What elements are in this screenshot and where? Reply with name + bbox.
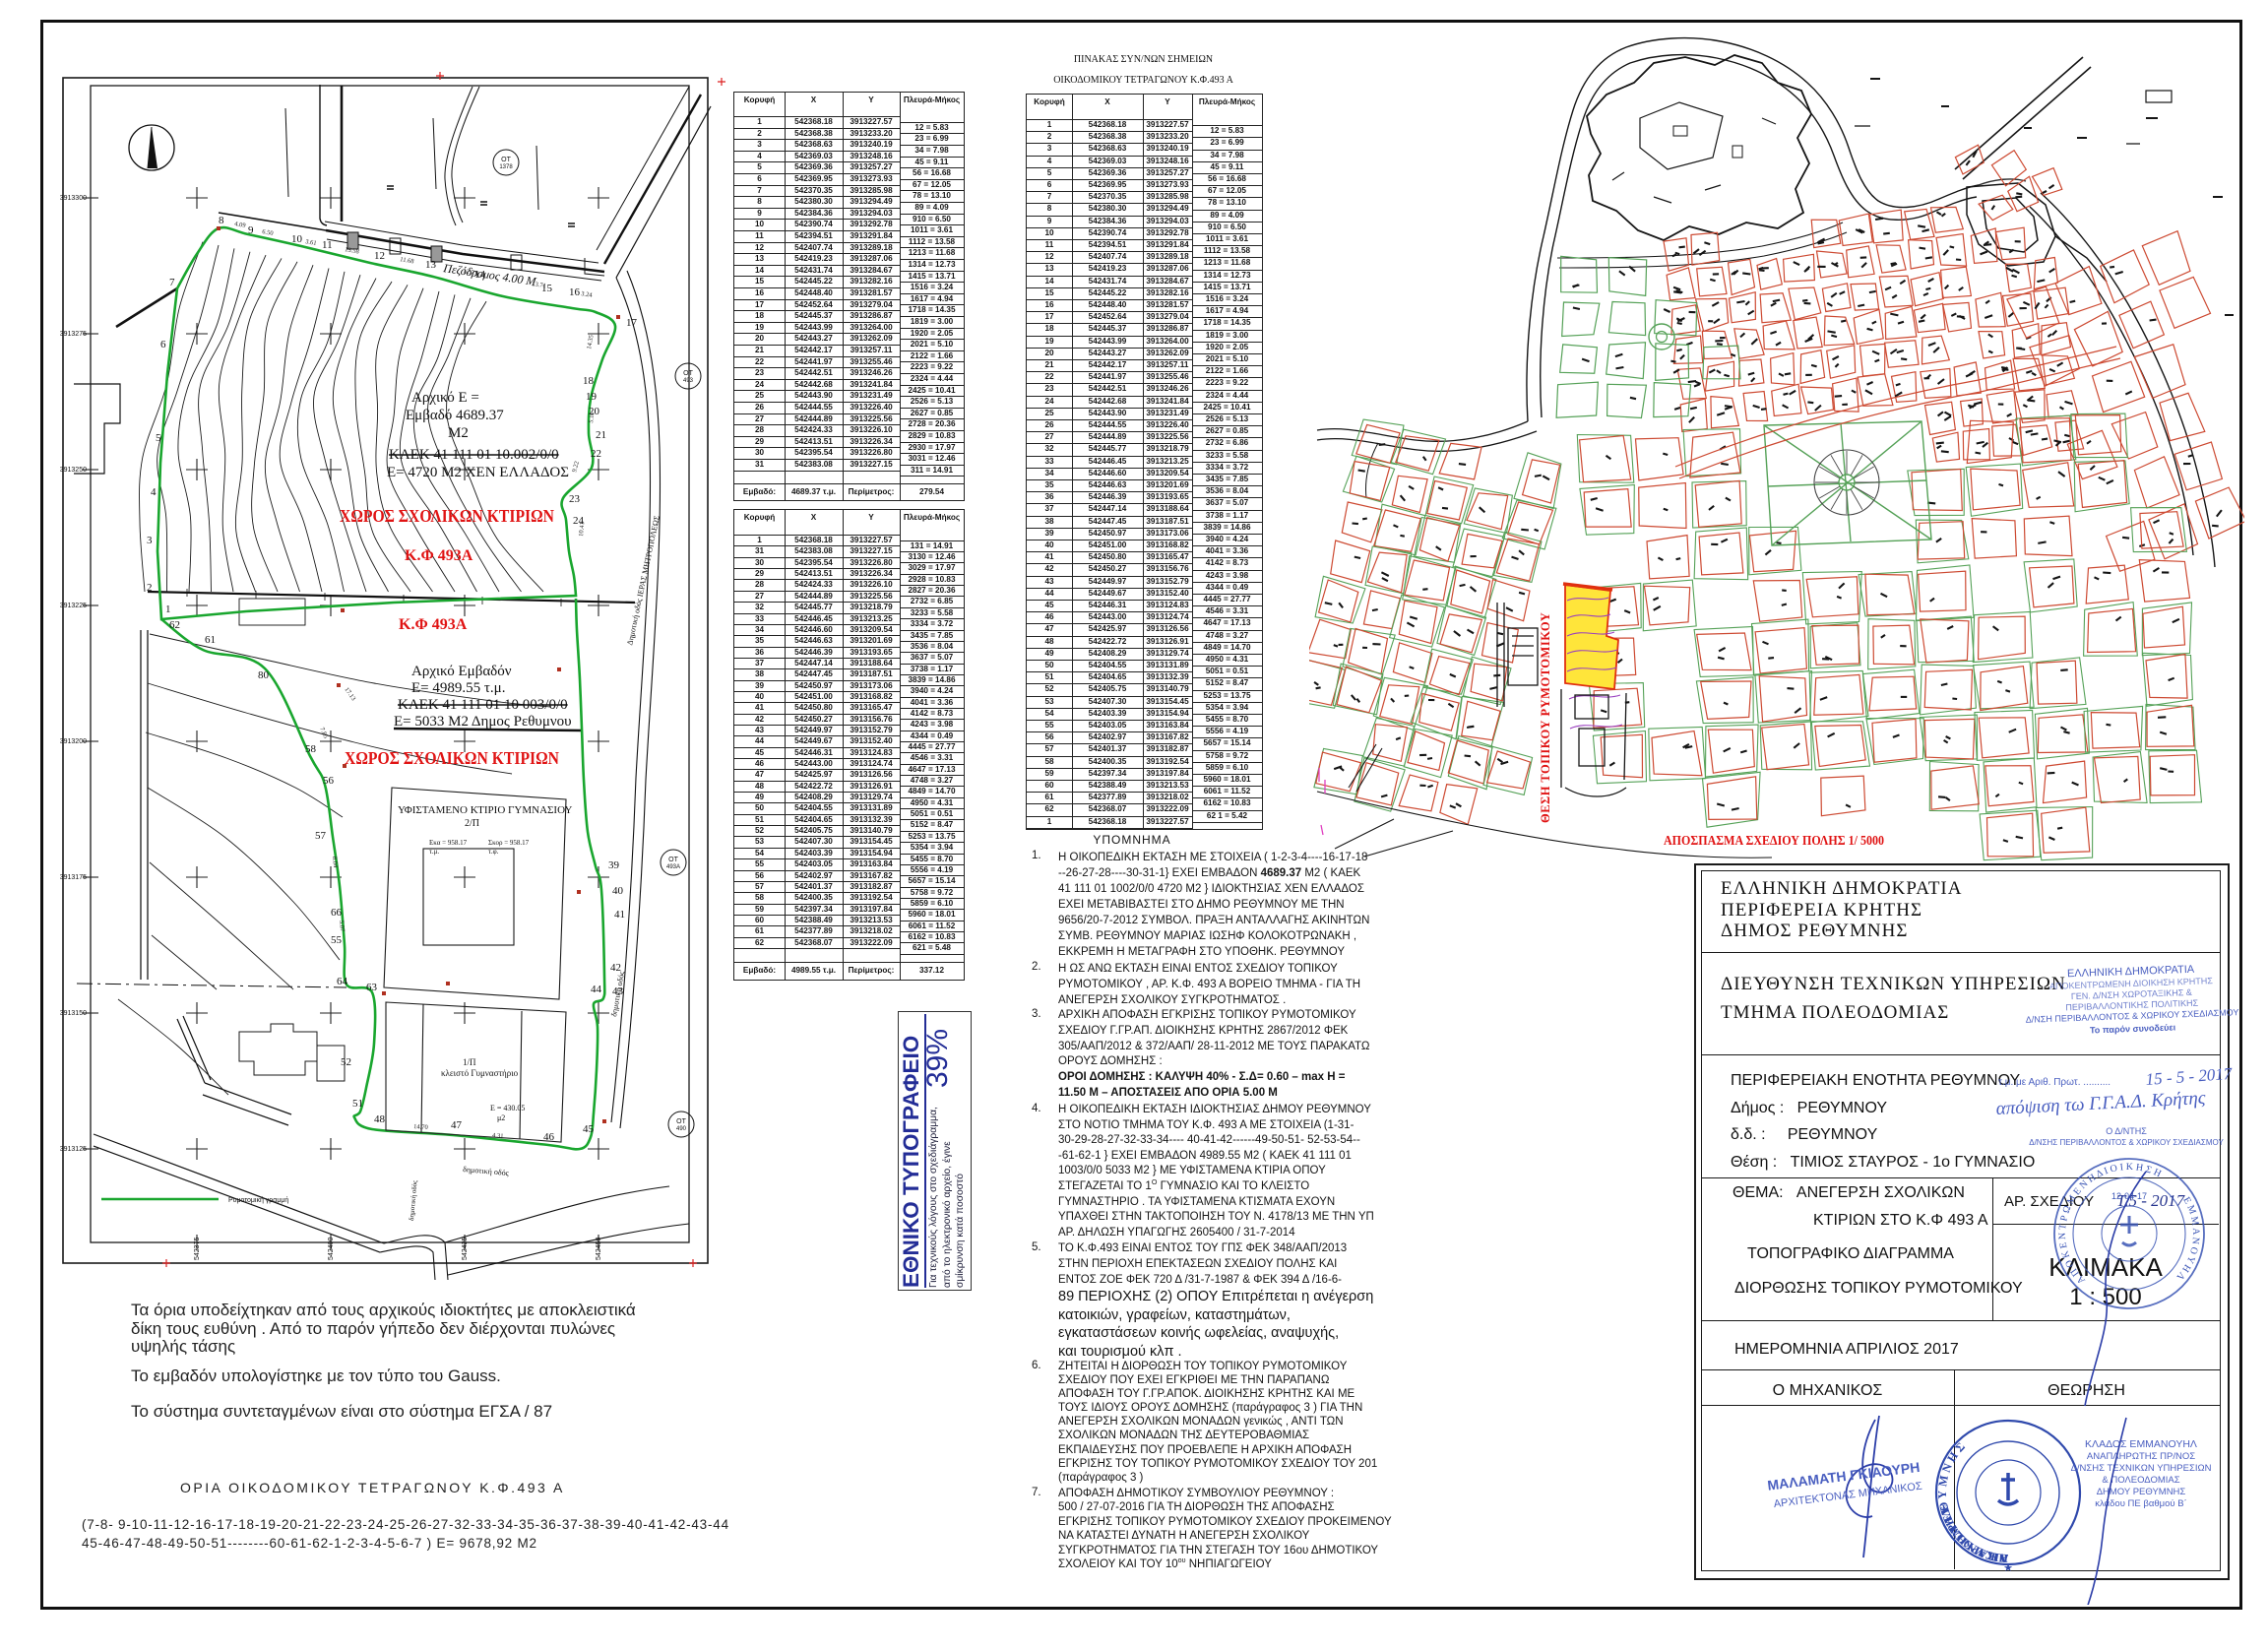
svg-text:ΘΕΣΗ ΤΟΠΙΚΟΥ ΡΥΜΟΤΟΜΙΚΟΥ: ΘΕΣΗ ΤΟΠΙΚΟΥ ΡΥΜΟΤΟΜΙΚΟΥ: [1539, 612, 1552, 823]
svg-text:2: 2: [147, 582, 153, 594]
svg-text:ΚΛΑΔΟΣ ΕΜΜΑΝΟΥΗΛ: ΚΛΑΔΟΣ ΕΜΜΑΝΟΥΗΛ: [2085, 1438, 2197, 1450]
svg-text:24: 24: [573, 515, 585, 527]
svg-text:63: 63: [366, 982, 378, 993]
svg-text:ΚΑΕΚ 41 111 01 10 003/0/0: ΚΑΕΚ 41 111 01 10 003/0/0: [398, 697, 568, 713]
svg-text:ΧΩΡΟΣ ΣΧΟΛΙΚΩΝ ΚΤΙΡΙΩΝ: ΧΩΡΟΣ ΣΧΟΛΙΚΩΝ ΚΤΙΡΙΩΝ: [340, 506, 554, 526]
svg-text:Δ/ΝΣΗΣ ΠΕΡΙΒΑΛΛΟΝΤΟΣ & ΧΩΡΙΚΟΥ: Δ/ΝΣΗΣ ΠΕΡΙΒΑΛΛΟΝΤΟΣ & ΧΩΡΙΚΟΥ ΣΧΕΔΙΑΣΜΟ…: [2029, 1138, 2224, 1147]
svg-text:490: 490: [676, 1126, 687, 1132]
svg-text:9.22: 9.22: [571, 461, 581, 474]
svg-text:3.24: 3.24: [581, 290, 594, 299]
svg-text:★: ★: [2003, 1562, 2013, 1574]
svg-text:κλειστό Γυμναστήριο: κλειστό Γυμναστήριο: [441, 1068, 519, 1078]
svg-text:11.68: 11.68: [400, 256, 414, 265]
svg-text:ΑΠΟΣΠΑΣΜΑ ΣΧΕΔΙΟΥ ΠΟΛΗΣ 1/ 50: ΑΠΟΣΠΑΣΜΑ ΣΧΕΔΙΟΥ ΠΟΛΗΣ 1/ 5000: [1664, 834, 1884, 849]
svg-text:τ.φ.: τ.φ.: [488, 848, 499, 856]
svg-text:Ο Δ/ΝΤΗΣ: Ο Δ/ΝΤΗΣ: [2106, 1126, 2147, 1136]
svg-text:Δ/ΝΣΗΣ ΤΕΧΝΙΚΩΝ ΥΠΗΡΕΣΙΩΝ: Δ/ΝΣΗΣ ΤΕΧΝΙΚΩΝ ΥΠΗΡΕΣΙΩΝ: [2071, 1463, 2212, 1474]
svg-text:15: 15: [541, 283, 553, 294]
svg-text:Ε= 4720 Μ2 ΧΕΝ ΕΛΛΑΔΟΣ: Ε= 4720 Μ2 ΧΕΝ ΕΛΛΑΔΟΣ: [387, 465, 569, 480]
svg-text:6.50: 6.50: [262, 228, 274, 237]
svg-text:3: 3: [147, 535, 153, 546]
svg-text:15 - 5 - 2017: 15 - 5 - 2017: [2145, 1064, 2234, 1089]
svg-text:Κ.Φ 493Α: Κ.Φ 493Α: [399, 616, 468, 633]
svg-text:& ΠΟΛΕΟΔΟΜΙΑΣ: & ΠΟΛΕΟΔΟΜΙΑΣ: [2102, 1475, 2179, 1486]
svg-text:20: 20: [589, 406, 600, 417]
svg-text:1/Π: 1/Π: [463, 1057, 476, 1067]
svg-text:66: 66: [331, 907, 343, 919]
svg-text:41: 41: [614, 909, 625, 921]
svg-text:18: 18: [583, 375, 595, 387]
svg-text:2/Π: 2/Π: [465, 818, 479, 829]
svg-text:39: 39: [608, 859, 620, 871]
svg-text:Δημοτική οδός ΙΕΡΑΣ ΜΗΤΡΟΠΟΛ: Δημοτική οδός ΙΕΡΑΣ ΜΗΤΡΟΠΟΛΕΩΣ: [625, 515, 661, 647]
svg-text:Κ.Φ 493Α: Κ.Φ 493Α: [405, 547, 473, 564]
svg-text:OT: OT: [683, 370, 693, 377]
svg-text:13: 13: [425, 259, 437, 271]
svg-text:3913150: 3913150: [60, 1010, 87, 1017]
svg-text:46: 46: [543, 1131, 555, 1143]
svg-text:3913250: 3913250: [60, 467, 87, 474]
svg-text:44: 44: [591, 984, 602, 995]
svg-text:542450: 542450: [596, 1238, 602, 1260]
svg-text:16: 16: [569, 286, 581, 298]
svg-text:3913175: 3913175: [60, 874, 87, 881]
svg-text:40: 40: [612, 885, 624, 897]
svg-text:56: 56: [323, 775, 335, 787]
svg-text:80: 80: [258, 669, 270, 681]
svg-text:11: 11: [322, 239, 333, 251]
svg-text:3913275: 3913275: [60, 331, 87, 338]
svg-text:5: 5: [156, 432, 161, 444]
svg-text:Ρυμοτομική γραμμή: Ρυμοτομική γραμμή: [228, 1197, 288, 1204]
svg-text:Εκα = 958.17: Εκα = 958.17: [429, 839, 468, 847]
svg-text:17: 17: [626, 317, 638, 329]
svg-text:22: 22: [591, 448, 601, 460]
svg-text:Ε Μ Μ Α Ν Ο Υ Η Λ: Ε Μ Μ Α Ν Ο Υ Η Λ: [2173, 1195, 2201, 1283]
svg-text:ΑΙΤΑΡΚΟΜΗΔ: ΑΙΤΑΡΚΟΜΗΔ: [1937, 1507, 2008, 1565]
svg-text:Ε = 430.05: Ε = 430.05: [490, 1104, 525, 1112]
svg-text:542400: 542400: [328, 1238, 335, 1260]
svg-text:δημοτική οδός: δημοτική οδός: [408, 1179, 419, 1221]
svg-text:542375: 542375: [194, 1238, 201, 1260]
svg-text:21: 21: [596, 429, 606, 441]
svg-text:13.58: 13.58: [345, 246, 360, 255]
svg-text:10: 10: [291, 233, 303, 245]
svg-text:64: 64: [337, 976, 348, 987]
svg-text:8.04: 8.04: [331, 857, 339, 869]
svg-text:3913225: 3913225: [60, 603, 87, 609]
svg-text:τ.μ.: τ.μ.: [429, 848, 439, 856]
svg-text:3913200: 3913200: [60, 738, 87, 745]
svg-text:542425: 542425: [462, 1238, 469, 1260]
svg-text:52: 52: [341, 1056, 351, 1068]
svg-text:19: 19: [586, 391, 598, 403]
svg-text:ΥΦΙΣΤΑΜΕΝΟ ΚΤΙΡΙΟ ΓΥΜΝΑΣΙΟΥ: ΥΦΙΣΤΑΜΕΝΟ ΚΤΙΡΙΟ ΓΥΜΝΑΣΙΟΥ: [398, 804, 572, 816]
svg-text:Αρχικό Εμβαδόν: Αρχικό Εμβαδόν: [411, 664, 512, 679]
svg-text:Ε= 4989.55 τ.μ.: Ε= 4989.55 τ.μ.: [411, 680, 505, 696]
svg-text:3.61: 3.61: [305, 238, 317, 247]
svg-text:Σκορ = 958.17: Σκορ = 958.17: [488, 839, 530, 847]
svg-text:43: 43: [612, 985, 624, 997]
svg-text:ΑΝΑΠΛΗΡΩΤΗΣ ΠΡ/ΝΟΣ: ΑΝΑΠΛΗΡΩΤΗΣ ΠΡ/ΝΟΣ: [2087, 1451, 2195, 1462]
svg-text:17.13: 17.13: [343, 686, 356, 702]
svg-text:τ.μ. με Αριθ. Πρωτ. .........: τ.μ. με Αριθ. Πρωτ. ..........: [1998, 1077, 2110, 1088]
svg-text:OT: OT: [676, 1118, 686, 1125]
svg-text:4.31: 4.31: [492, 1132, 504, 1140]
svg-text:42: 42: [610, 962, 621, 974]
svg-text:κλάδου ΠΕ βαθμού Β΄: κλάδου ΠΕ βαθμού Β΄: [2095, 1498, 2186, 1509]
svg-text:48: 48: [374, 1113, 386, 1125]
svg-text:23: 23: [569, 493, 581, 505]
svg-text:Αρχικό Ε =: Αρχικό Ε =: [411, 390, 479, 406]
svg-text:14.70: 14.70: [413, 1123, 428, 1131]
svg-text:14.35: 14.35: [586, 335, 595, 350]
svg-text:Εμβαδό 4689.37: Εμβαδό 4689.37: [406, 408, 504, 423]
svg-text:12: 12: [374, 250, 385, 262]
svg-text:55: 55: [331, 934, 343, 946]
svg-text:4: 4: [151, 486, 157, 498]
svg-text:3913125: 3913125: [60, 1146, 87, 1153]
svg-text:5.07: 5.07: [338, 921, 346, 933]
svg-text:OT: OT: [668, 857, 678, 863]
svg-text:4.09: 4.09: [234, 221, 246, 229]
svg-text:μ2: μ2: [497, 1113, 505, 1122]
svg-text:8: 8: [219, 215, 224, 226]
svg-text:Το παρόν συνοδεύει: Το παρόν συνοδεύει: [2090, 1022, 2176, 1035]
svg-text:ΧΩΡΟΣ ΣΧΟΛΙΚΩΝ ΚΤΙΡΙΩΝ: ΧΩΡΟΣ ΣΧΟΛΙΚΩΝ ΚΤΙΡΙΩΝ: [345, 748, 559, 768]
svg-text:493A: 493A: [666, 864, 680, 870]
svg-text:1: 1: [165, 604, 171, 615]
svg-text:απόψιση τω Γ.Γ.Α.Δ. Κρήτης: απόψιση τω Γ.Γ.Α.Δ. Κρήτης: [1995, 1088, 2206, 1119]
svg-text:58: 58: [305, 743, 317, 755]
svg-text:3913300: 3913300: [60, 195, 87, 202]
svg-text:51: 51: [352, 1098, 363, 1110]
svg-text:ΚΑΕΚ 41 111 01 10.002/0/0: ΚΑΕΚ 41 111 01 10.002/0/0: [389, 447, 559, 463]
svg-text:OT: OT: [501, 157, 511, 163]
svg-text:47: 47: [451, 1119, 463, 1131]
svg-text:57: 57: [315, 830, 327, 842]
svg-text:δημοτική οδός: δημοτική οδός: [463, 1165, 510, 1177]
svg-text:Ε= 5033 Μ2 Δημος Ρεθυμνου: Ε= 5033 Μ2 Δημος Ρεθυμνου: [394, 714, 572, 730]
svg-text:1378: 1378: [499, 164, 513, 170]
svg-text:45: 45: [583, 1123, 595, 1135]
svg-text:61: 61: [205, 634, 216, 646]
svg-text:Μ2: Μ2: [448, 425, 469, 441]
svg-text:9: 9: [248, 224, 254, 236]
svg-text:493: 493: [683, 378, 694, 384]
svg-text:62: 62: [169, 619, 180, 631]
svg-text:7: 7: [169, 277, 175, 288]
svg-text:6: 6: [160, 339, 166, 350]
svg-text:14: 14: [474, 269, 486, 281]
